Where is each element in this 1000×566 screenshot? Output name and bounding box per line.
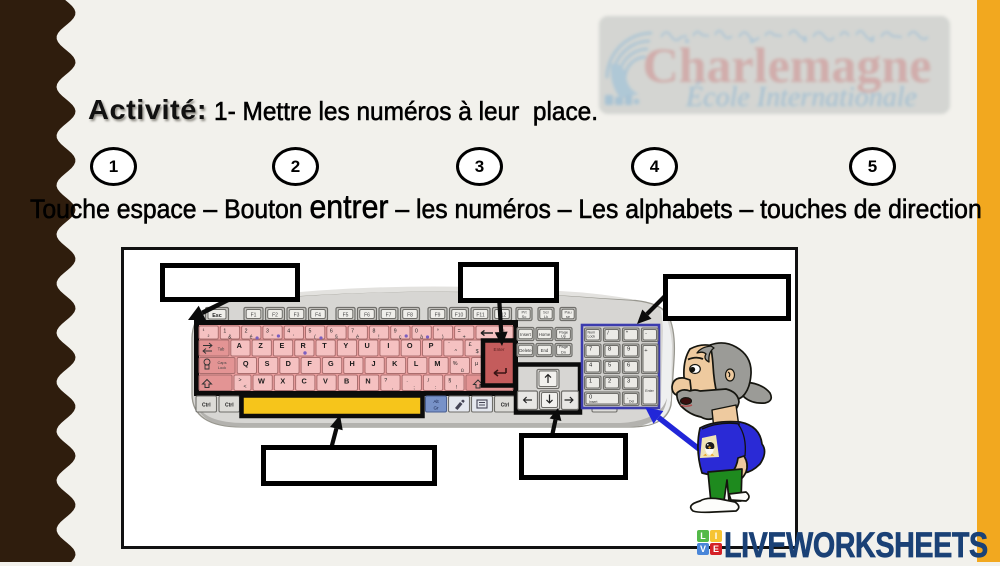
svg-text:µ: µ bbox=[475, 361, 478, 367]
svg-text:J: J bbox=[371, 359, 375, 368]
svg-text:§: § bbox=[448, 378, 451, 384]
svg-text:Y: Y bbox=[343, 341, 348, 350]
svg-text:O: O bbox=[407, 341, 413, 350]
svg-text:°: ° bbox=[437, 329, 439, 335]
svg-text:2: 2 bbox=[608, 379, 611, 385]
svg-text:F3: F3 bbox=[294, 313, 300, 319]
svg-text:F: F bbox=[307, 359, 312, 368]
svg-text:Ctrl: Ctrl bbox=[202, 403, 211, 409]
svg-text:Dn: Dn bbox=[561, 350, 566, 355]
svg-text:¨: ¨ bbox=[448, 342, 450, 348]
svg-text:Lock: Lock bbox=[218, 365, 226, 370]
svg-text:é: é bbox=[250, 335, 253, 341]
svg-text:4: 4 bbox=[287, 329, 290, 335]
svg-text:F9: F9 bbox=[435, 313, 441, 319]
svg-text:è: è bbox=[356, 335, 359, 341]
svg-text:Lk: Lk bbox=[544, 314, 548, 319]
svg-text:Q: Q bbox=[243, 359, 249, 368]
svg-text:£: £ bbox=[469, 342, 472, 348]
svg-text:E: E bbox=[279, 341, 284, 350]
svg-text:-: - bbox=[645, 331, 647, 337]
svg-text:Insert: Insert bbox=[589, 400, 598, 404]
svg-text::: : bbox=[435, 385, 437, 391]
svg-text:Up: Up bbox=[561, 334, 566, 339]
svg-text:F2: F2 bbox=[272, 313, 278, 319]
svg-text:=: = bbox=[458, 329, 461, 335]
svg-text:Delete: Delete bbox=[519, 348, 532, 353]
svg-text:(: ( bbox=[314, 335, 316, 341]
svg-text:I: I bbox=[387, 341, 389, 350]
svg-text:Enter: Enter bbox=[494, 347, 505, 352]
svg-text:": " bbox=[271, 335, 273, 341]
svg-text:D: D bbox=[286, 359, 291, 368]
svg-text:Sc: Sc bbox=[522, 314, 527, 319]
svg-text:8: 8 bbox=[608, 347, 611, 353]
svg-text:U: U bbox=[364, 341, 369, 350]
svg-text:Gr: Gr bbox=[433, 406, 439, 411]
svg-text:T: T bbox=[322, 341, 327, 350]
svg-text:1: 1 bbox=[223, 329, 226, 335]
svg-text:Insert: Insert bbox=[520, 332, 532, 337]
svg-text:Home: Home bbox=[539, 332, 551, 337]
svg-text:': ' bbox=[293, 335, 294, 341]
svg-text:B: B bbox=[344, 377, 349, 386]
svg-text:¹: ¹ bbox=[203, 329, 205, 335]
svg-text:Tab: Tab bbox=[218, 347, 225, 352]
svg-text:$: $ bbox=[476, 349, 479, 355]
svg-text:P: P bbox=[429, 341, 434, 350]
svg-text:6: 6 bbox=[330, 329, 333, 335]
svg-text:5: 5 bbox=[309, 329, 312, 335]
svg-text:F5: F5 bbox=[343, 313, 349, 319]
svg-text:N: N bbox=[365, 377, 370, 386]
svg-text:6: 6 bbox=[627, 363, 630, 369]
svg-text:): ) bbox=[442, 335, 444, 341]
svg-text:F4: F4 bbox=[315, 313, 321, 319]
svg-text:.: . bbox=[406, 378, 408, 384]
svg-text:&: & bbox=[228, 335, 232, 341]
svg-text:F11: F11 bbox=[476, 313, 484, 319]
svg-text:7: 7 bbox=[589, 347, 592, 353]
svg-text:F6: F6 bbox=[364, 313, 370, 319]
svg-text:F10: F10 bbox=[455, 313, 464, 319]
svg-text:Page: Page bbox=[559, 344, 568, 349]
svg-text:K: K bbox=[392, 359, 398, 368]
svg-text:End: End bbox=[541, 348, 549, 353]
svg-text:5: 5 bbox=[608, 363, 611, 369]
svg-text:ç: ç bbox=[399, 335, 402, 341]
svg-text:G: G bbox=[328, 359, 334, 368]
svg-text:Del: Del bbox=[629, 400, 634, 404]
svg-text:3: 3 bbox=[627, 379, 630, 385]
svg-text:X: X bbox=[280, 377, 285, 386]
svg-text:Ctrl: Ctrl bbox=[225, 403, 234, 409]
svg-text:9: 9 bbox=[627, 347, 630, 353]
svg-text:§: § bbox=[335, 335, 338, 341]
svg-text:W: W bbox=[258, 377, 265, 386]
svg-text:1: 1 bbox=[589, 379, 592, 385]
svg-text:S: S bbox=[265, 359, 270, 368]
svg-text:Z: Z bbox=[258, 341, 263, 350]
svg-text:8: 8 bbox=[372, 329, 375, 335]
svg-text:F8: F8 bbox=[407, 313, 413, 319]
svg-text:F1: F1 bbox=[251, 313, 257, 319]
svg-text:>: > bbox=[238, 378, 241, 384]
svg-text:V: V bbox=[323, 377, 328, 386]
svg-text:0: 0 bbox=[415, 329, 418, 335]
svg-text:A: A bbox=[237, 341, 243, 350]
svg-text:C: C bbox=[301, 377, 307, 386]
svg-text:Esc: Esc bbox=[212, 313, 222, 319]
svg-text:à: à bbox=[420, 335, 423, 341]
svg-text:Alt: Alt bbox=[433, 399, 439, 404]
svg-text:ù: ù bbox=[461, 368, 464, 374]
svg-text:2: 2 bbox=[245, 329, 248, 335]
svg-text:<: < bbox=[243, 384, 246, 390]
svg-text:3: 3 bbox=[266, 329, 269, 335]
svg-text:Ctrl: Ctrl bbox=[501, 403, 510, 409]
svg-text:Lock: Lock bbox=[588, 335, 596, 339]
svg-text:9: 9 bbox=[394, 329, 397, 335]
svg-text:Enter: Enter bbox=[645, 389, 654, 393]
svg-text:!: ! bbox=[378, 335, 379, 341]
svg-text:7: 7 bbox=[351, 329, 354, 335]
svg-text:R: R bbox=[301, 341, 307, 350]
svg-text:?: ? bbox=[384, 378, 387, 384]
svg-text:+: + bbox=[463, 335, 466, 341]
svg-text:F7: F7 bbox=[386, 313, 392, 319]
svg-text:H: H bbox=[350, 359, 355, 368]
svg-text:L: L bbox=[414, 359, 419, 368]
svg-text:M: M bbox=[434, 359, 440, 368]
svg-text:%: % bbox=[453, 361, 458, 367]
